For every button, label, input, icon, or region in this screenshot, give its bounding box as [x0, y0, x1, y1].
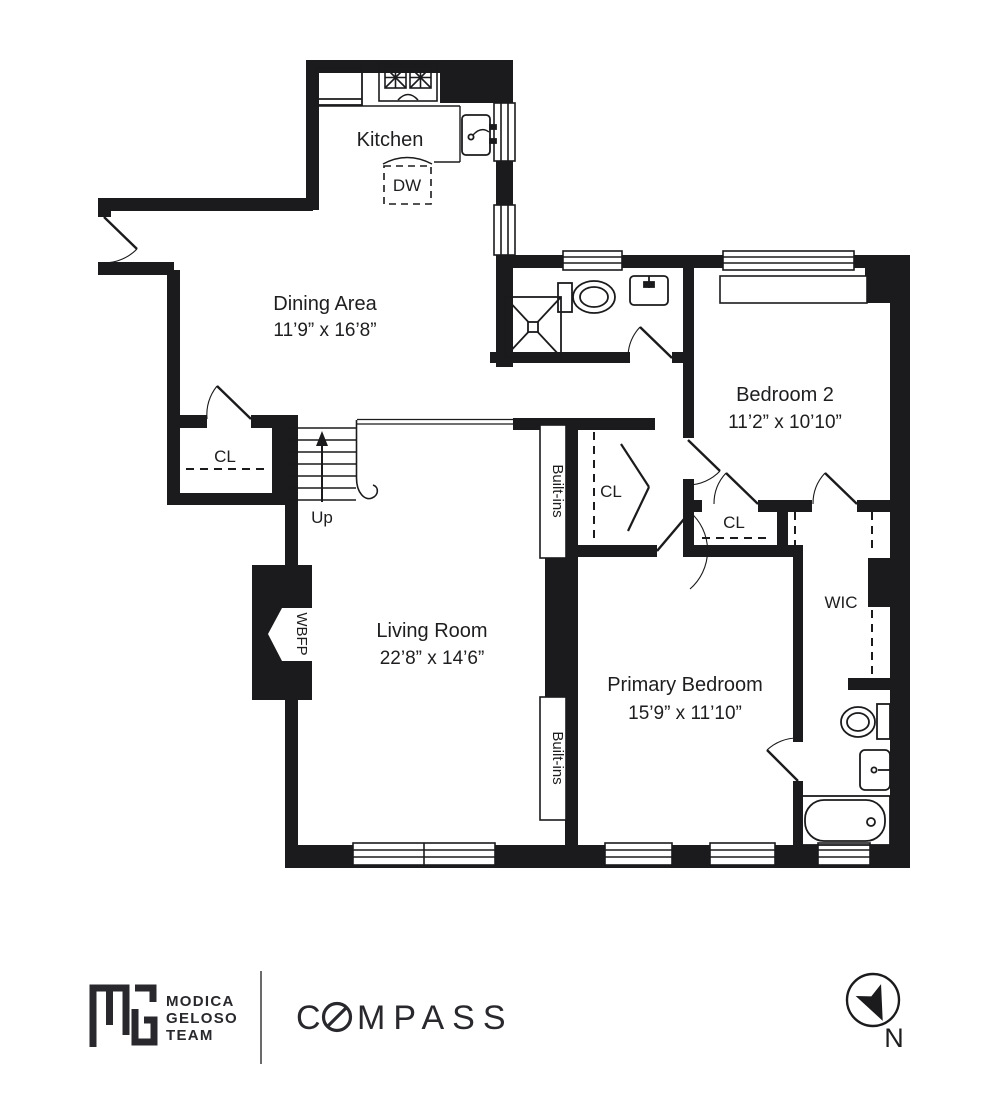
- bedroom2-dims: 11’2” x 10’10”: [728, 412, 842, 433]
- team-name: MODICA GELOSO TEAM: [166, 993, 238, 1044]
- dishwasher-label: DW: [393, 176, 421, 195]
- living-label: Living Room: [376, 620, 487, 642]
- wic-label: WIC: [824, 593, 857, 612]
- stair-railing: [357, 420, 378, 499]
- floor-plan-page: Kitchen DW Dining Area 11’9” x 16’8” Bed…: [0, 0, 1000, 1117]
- entry-door: [97, 217, 137, 263]
- floor-plan-canvas: Kitchen DW Dining Area 11’9” x 16’8” Bed…: [0, 0, 1000, 1117]
- team-line-3: TEAM: [166, 1027, 214, 1044]
- bath-sink: [630, 276, 668, 305]
- bath-door: [628, 327, 672, 358]
- built-ins-lower-label: Built-ins: [549, 731, 566, 784]
- built-ins-upper-label: Built-ins: [549, 464, 566, 517]
- hall-closet-label: CL: [600, 482, 622, 501]
- primary-sink: [860, 750, 890, 790]
- bedroom2-label: Bedroom 2: [736, 384, 834, 406]
- shower: [505, 297, 561, 357]
- small-closet-door: [714, 473, 758, 504]
- footer: MODICA GELOSO TEAM C MPASS N: [93, 971, 904, 1064]
- kitchen-window-2: [494, 205, 515, 255]
- team-line-1: MODICA: [166, 993, 235, 1010]
- team-line-2: GELOSO: [166, 1010, 238, 1027]
- primary-window-2: [710, 843, 775, 865]
- bathtub: [800, 796, 890, 845]
- bedroom2-window: [720, 251, 867, 303]
- fireplace-label: WBFP: [293, 612, 310, 655]
- entry-closet-door: [207, 386, 251, 419]
- wic-door: [813, 473, 857, 504]
- refrigerator: [316, 68, 362, 105]
- entry-closet-label: CL: [214, 447, 236, 466]
- primary-toilet: [841, 704, 890, 739]
- primary-label: Primary Bedroom: [607, 674, 763, 696]
- primary-bath-door: [767, 738, 798, 781]
- primary-bath-window: [818, 843, 870, 865]
- dining-label: Dining Area: [273, 293, 377, 315]
- living-dims: 22’8” x 14’6”: [380, 648, 485, 669]
- up-arrow-icon: [316, 431, 328, 502]
- modica-geloso-logo-icon: [93, 988, 154, 1047]
- bath-window: [563, 251, 622, 270]
- stairs: [288, 420, 513, 503]
- dining-dims: 11’9” x 16’8”: [273, 320, 376, 341]
- living-room-window: [353, 843, 495, 865]
- north-indicator: N: [847, 974, 904, 1053]
- compass-logo: C MPASS: [296, 999, 514, 1037]
- stairs-up-label: Up: [311, 508, 333, 527]
- small-closet-label: CL: [723, 513, 745, 532]
- bifold-closet-doors: [621, 444, 649, 531]
- primary-dims: 15’9” x 11’10”: [628, 703, 742, 724]
- compass-logo-end: MPASS: [357, 999, 514, 1037]
- bedroom2-door: [688, 440, 720, 485]
- toilet: [558, 281, 615, 313]
- primary-window-1: [605, 843, 672, 865]
- north-letter: N: [884, 1023, 904, 1053]
- kitchen-label: Kitchen: [357, 129, 424, 151]
- kitchen-window-1: [494, 103, 515, 161]
- kitchen-sink: [462, 115, 496, 155]
